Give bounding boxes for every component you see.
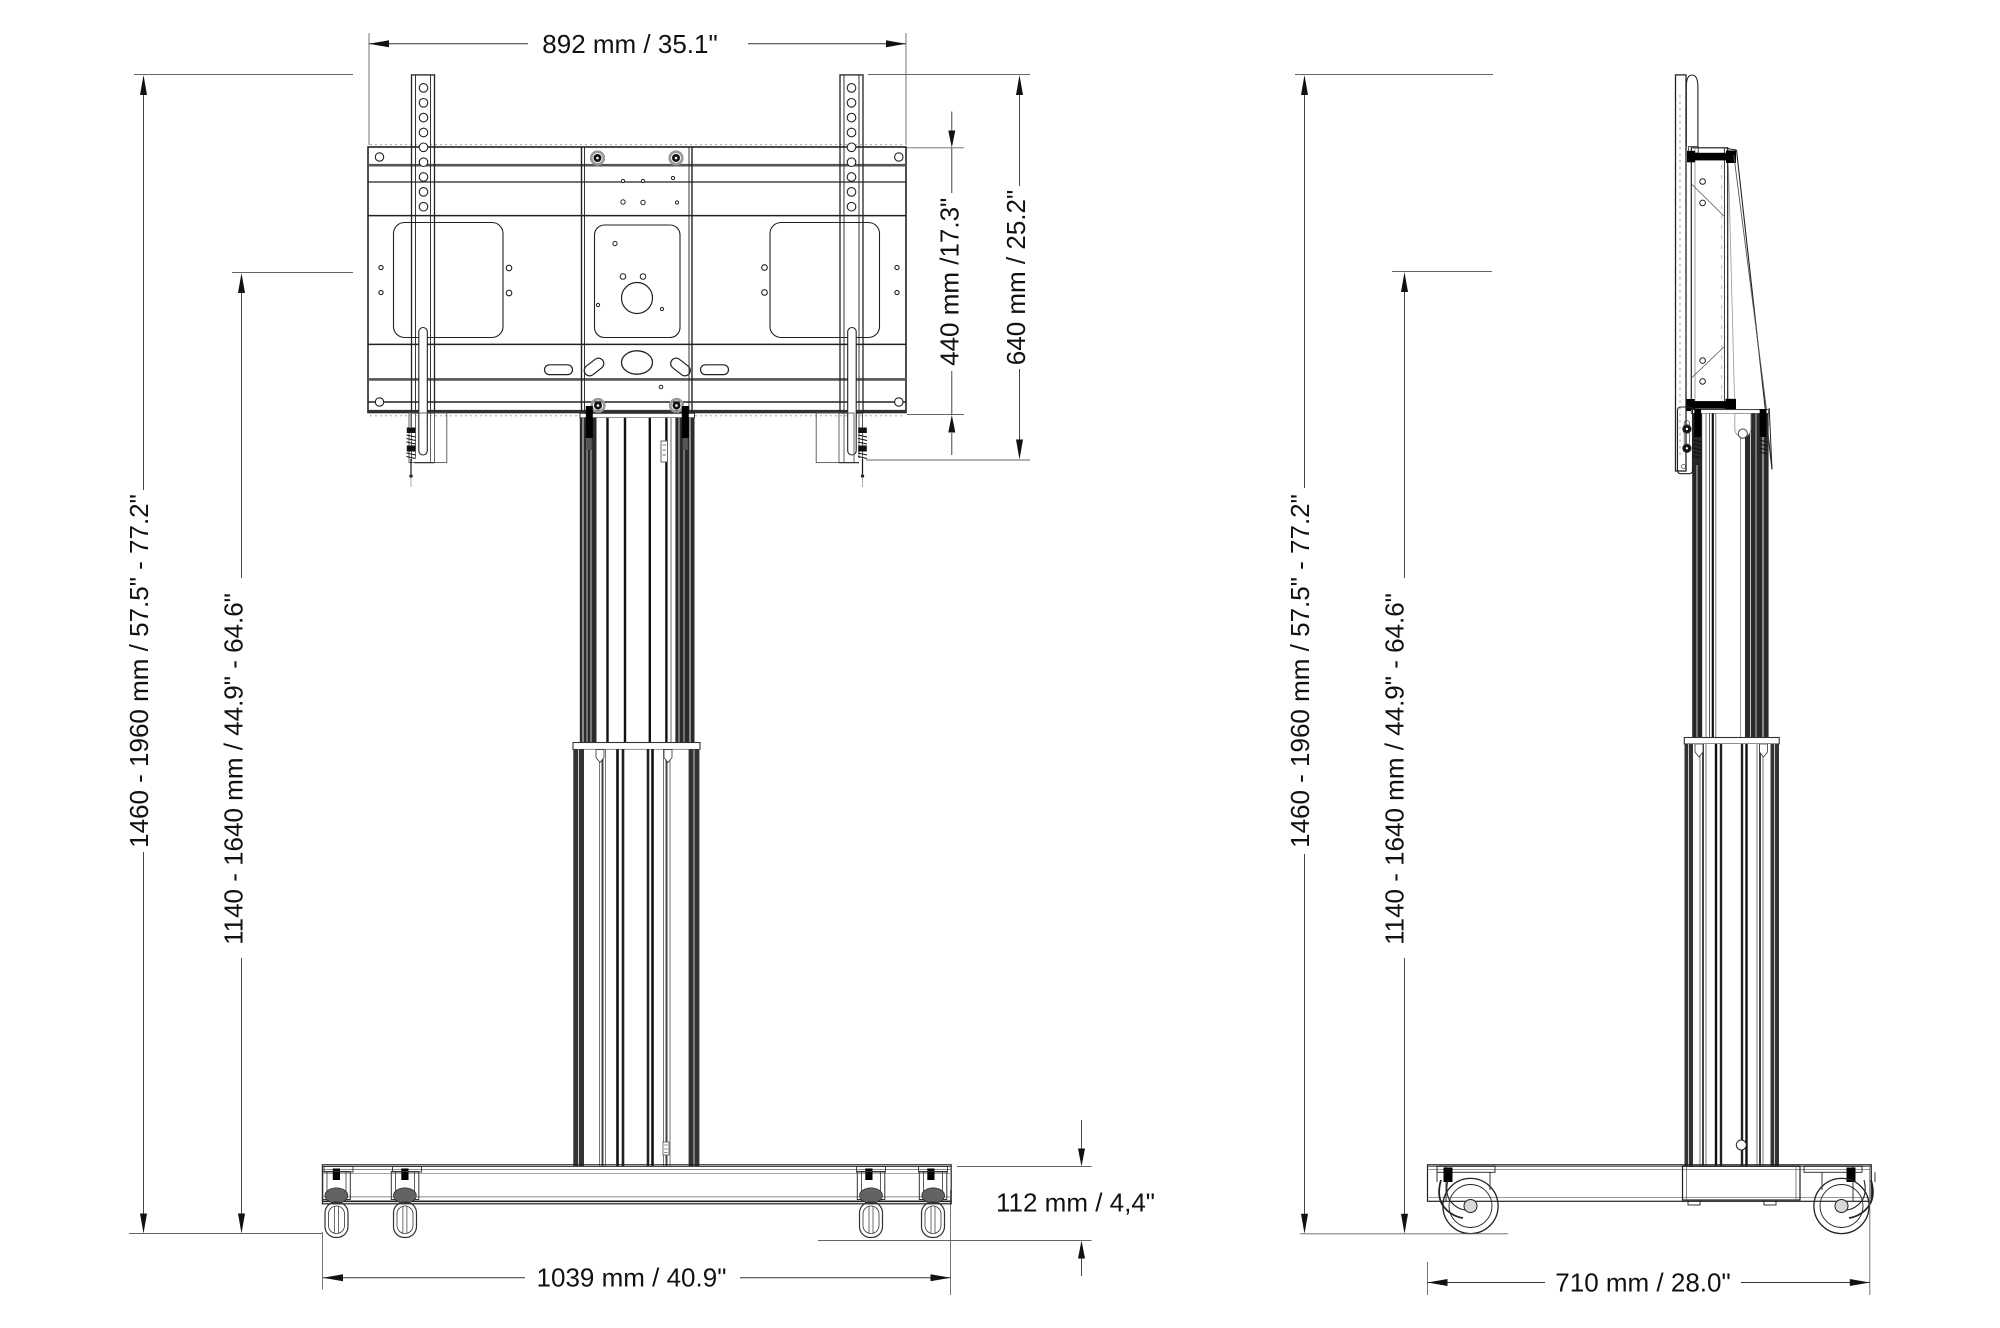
svg-text:112 mm / 4,4": 112 mm / 4,4" — [996, 1188, 1155, 1218]
svg-text:710 mm / 28.0": 710 mm / 28.0" — [1555, 1268, 1730, 1298]
svg-text:1039 mm / 40.9": 1039 mm / 40.9" — [537, 1263, 727, 1293]
svg-text:640 mm / 25.2": 640 mm / 25.2" — [1001, 190, 1031, 365]
svg-text:440 mm /17.3": 440 mm /17.3" — [934, 198, 964, 366]
svg-text:1140 - 1640 mm / 44.9" - 64.6": 1140 - 1640 mm / 44.9" - 64.6" — [1380, 593, 1410, 945]
svg-text:1460 - 1960 mm / 57.5" - 77.2": 1460 - 1960 mm / 57.5" - 77.2" — [124, 494, 154, 848]
svg-text:892 mm / 35.1": 892 mm / 35.1" — [542, 29, 717, 59]
svg-text:1460 - 1960 mm / 57.5" - 77.2": 1460 - 1960 mm / 57.5" - 77.2" — [1285, 494, 1315, 848]
svg-text:1140 - 1640 mm / 44.9" - 64.6": 1140 - 1640 mm / 44.9" - 64.6" — [219, 593, 249, 945]
